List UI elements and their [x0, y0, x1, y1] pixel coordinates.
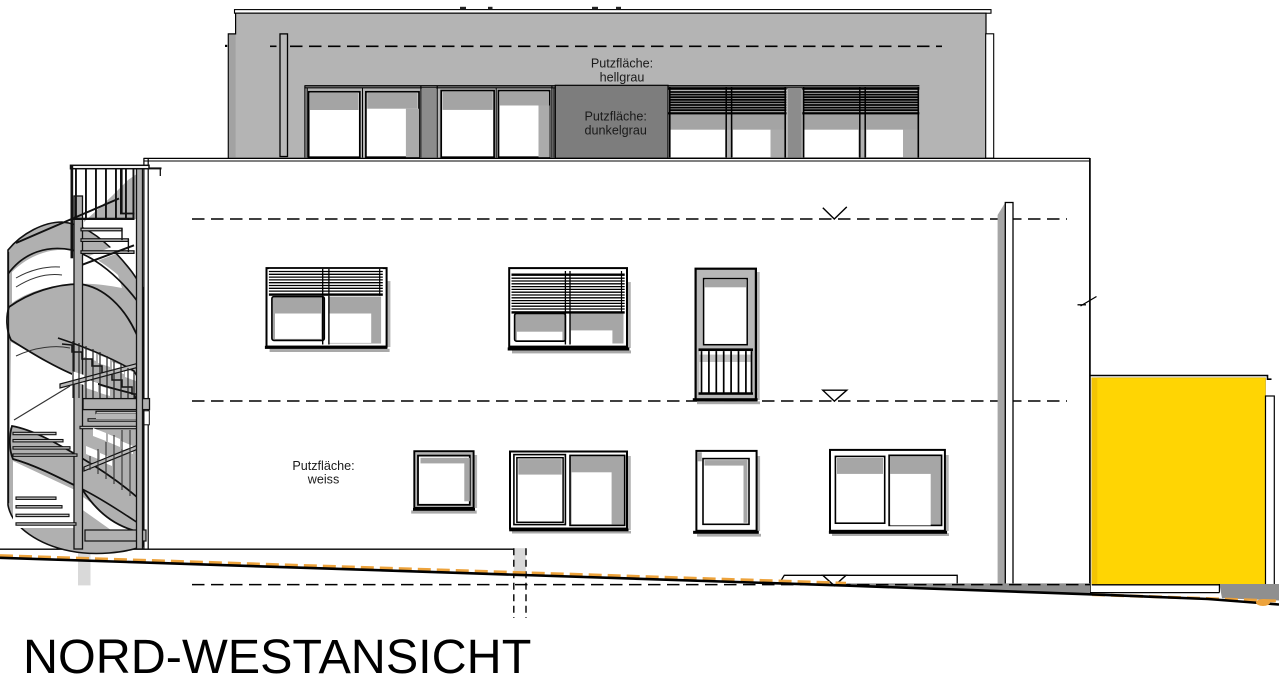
svg-text:weiss: weiss	[307, 472, 340, 486]
svg-text:Putzfläche:: Putzfläche:	[591, 57, 653, 71]
svg-text:Putzfläche:: Putzfläche:	[292, 459, 354, 473]
svg-text:Putzfläche:: Putzfläche:	[585, 110, 647, 124]
svg-text:hellgrau: hellgrau	[600, 71, 645, 85]
svg-text:NORD-WESTANSICHT: NORD-WESTANSICHT	[23, 630, 531, 682]
svg-text:dunkelgrau: dunkelgrau	[585, 124, 647, 138]
